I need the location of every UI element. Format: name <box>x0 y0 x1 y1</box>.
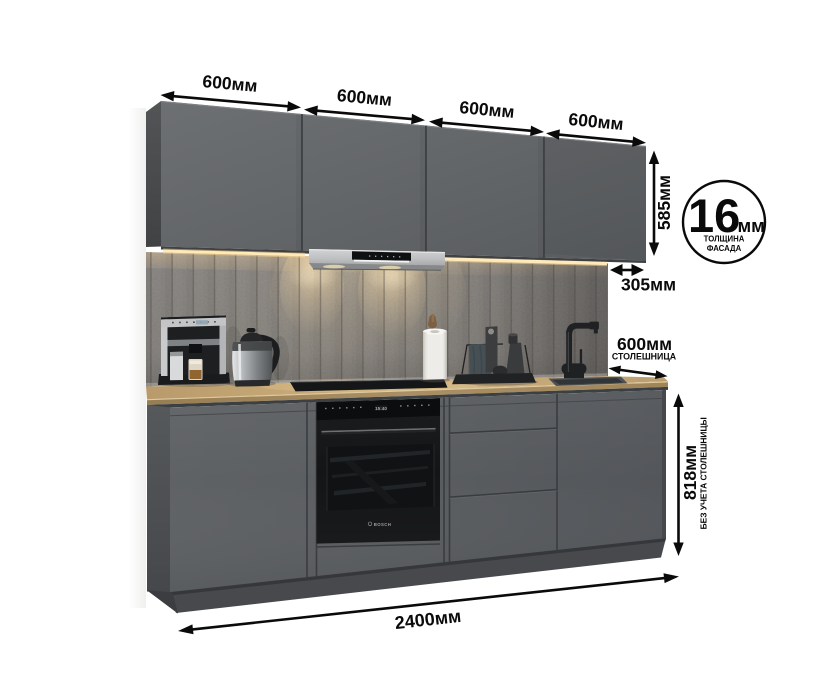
svg-text:305мм: 305мм <box>621 275 676 295</box>
svg-text:ФАСАДА: ФАСАДА <box>707 244 742 253</box>
svg-text:мм: мм <box>738 215 765 236</box>
svg-text:СТОЛЕШНИЦА: СТОЛЕШНИЦА <box>612 352 677 362</box>
svg-text:15:40: 15:40 <box>375 406 387 411</box>
svg-text:ТОЛЩИНА: ТОЛЩИНА <box>704 235 745 244</box>
svg-text:585мм: 585мм <box>654 175 674 230</box>
svg-text:818мм: 818мм <box>680 445 700 500</box>
svg-text:BOSCH: BOSCH <box>374 522 392 527</box>
svg-text:БЕЗ УЧЕТА СТОЛЕШНИЦЫ: БЕЗ УЧЕТА СТОЛЕШНИЦЫ <box>699 417 709 529</box>
